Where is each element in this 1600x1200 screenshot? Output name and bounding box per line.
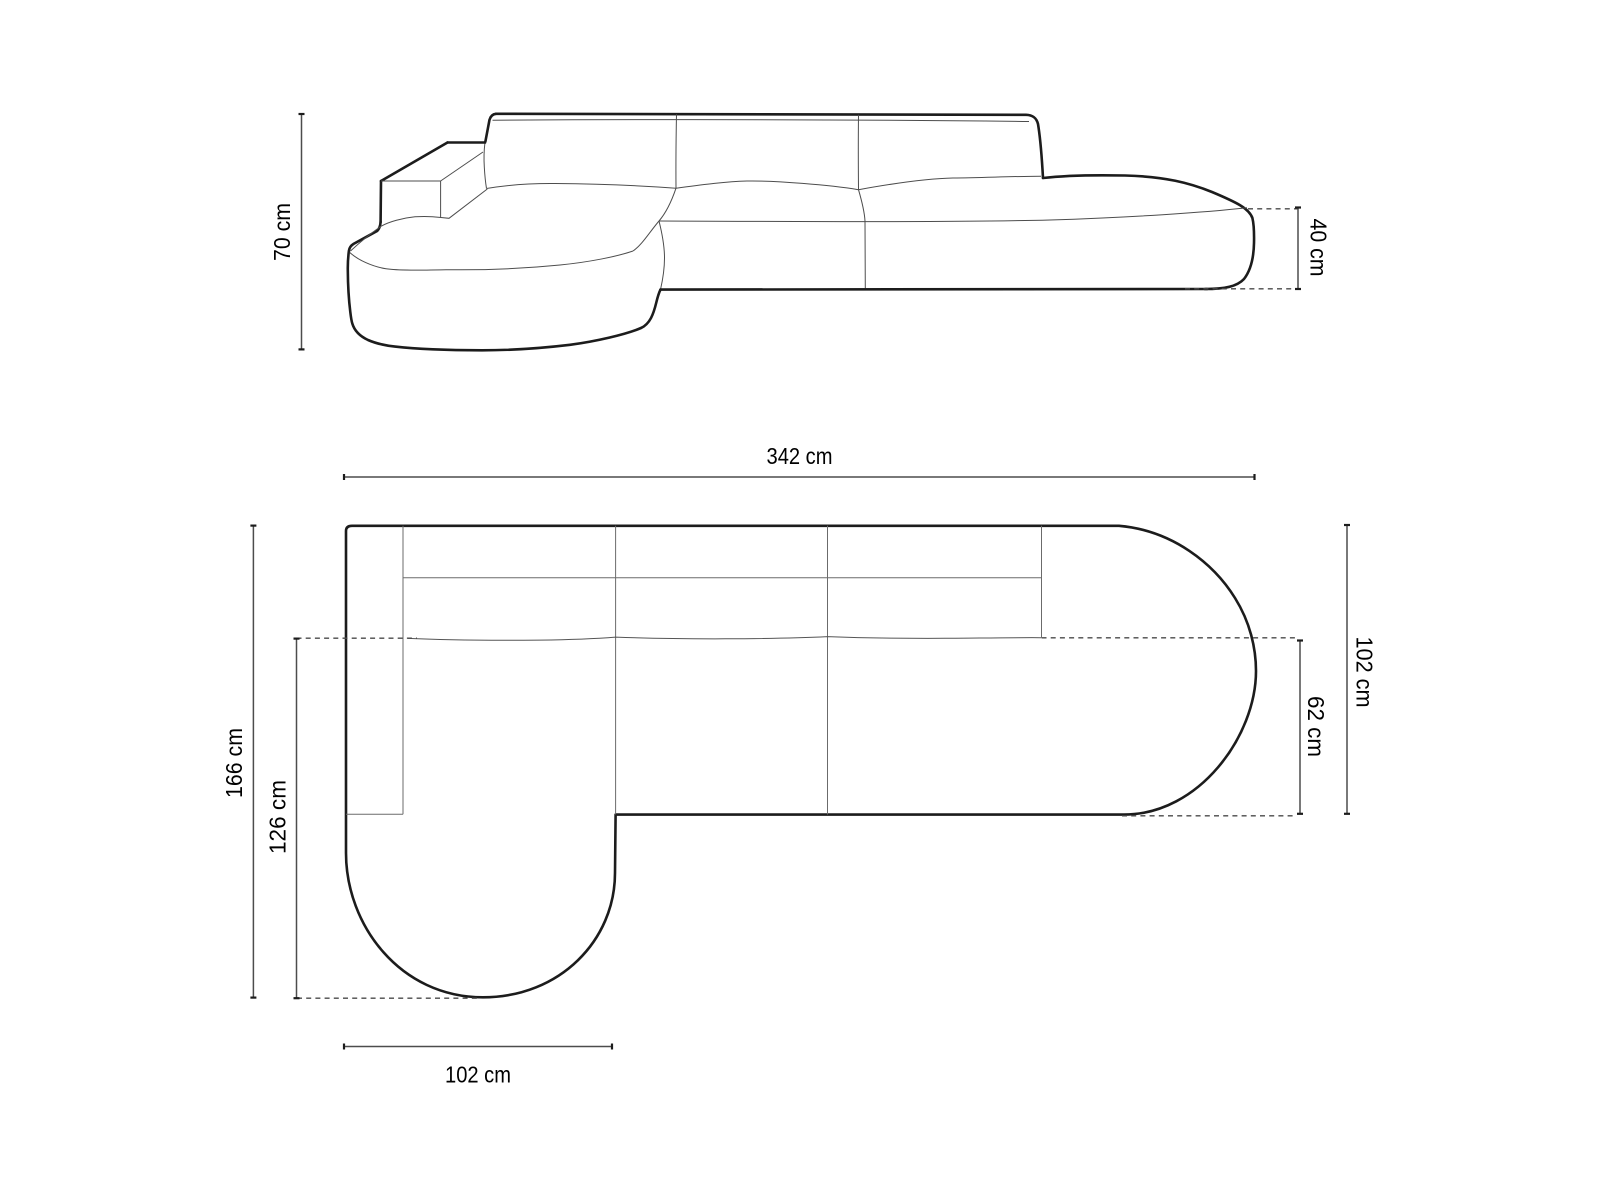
svg-text:40 cm: 40 cm: [1306, 219, 1332, 277]
svg-text:62 cm: 62 cm: [1303, 696, 1329, 757]
svg-text:102 cm: 102 cm: [445, 1062, 511, 1088]
svg-text:166 cm: 166 cm: [221, 728, 247, 798]
svg-text:70 cm: 70 cm: [269, 203, 295, 261]
svg-text:342 cm: 342 cm: [767, 443, 833, 469]
svg-text:126 cm: 126 cm: [265, 780, 291, 854]
svg-text:102 cm: 102 cm: [1352, 637, 1378, 708]
